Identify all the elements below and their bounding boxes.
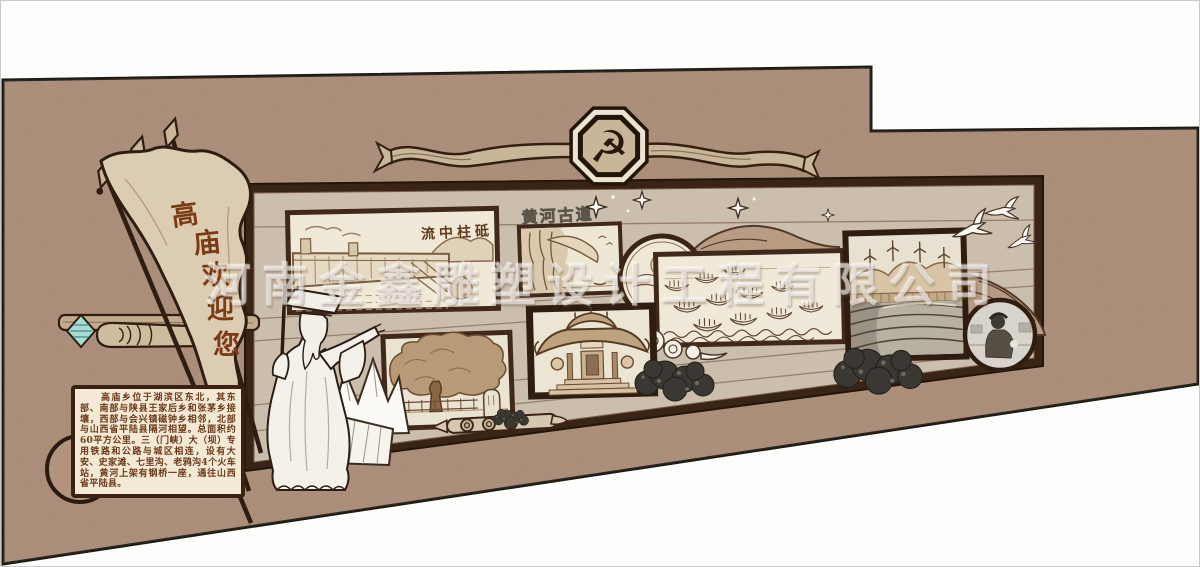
picture-terraced-fields: [842, 227, 969, 362]
bush-cluster: [635, 360, 714, 401]
flag-char: 庙: [192, 226, 222, 261]
party-emblem: ☭: [571, 108, 647, 184]
medallion-photo: [965, 300, 1035, 370]
gorge-title: 黄河古道: [521, 204, 594, 227]
picture-ferry-boats: [653, 248, 847, 348]
picture-ancient-road: [517, 221, 624, 298]
design-canvas: 黄河古道 流中柱砥: [0, 0, 1200, 567]
flag-char: 您: [213, 329, 240, 361]
flag-char: 高: [169, 197, 200, 232]
hammer-sickle-icon: ☭: [589, 122, 628, 173]
info-text: 高庙乡位于湖滨区东北，其东部、南部与陕县王家后乡和张茅乡接壤，西部与会兴镇磁钟乡…: [80, 393, 236, 489]
flag-char: 欢: [200, 259, 231, 292]
info-box: 高庙乡位于湖滨区东北，其东部、南部与陕县王家后乡和张茅乡接壤，西部与会兴镇磁钟乡…: [71, 385, 245, 498]
bush-cluster: [834, 348, 922, 394]
flag-char: 迎: [207, 294, 234, 325]
bush-cluster: [493, 409, 529, 427]
